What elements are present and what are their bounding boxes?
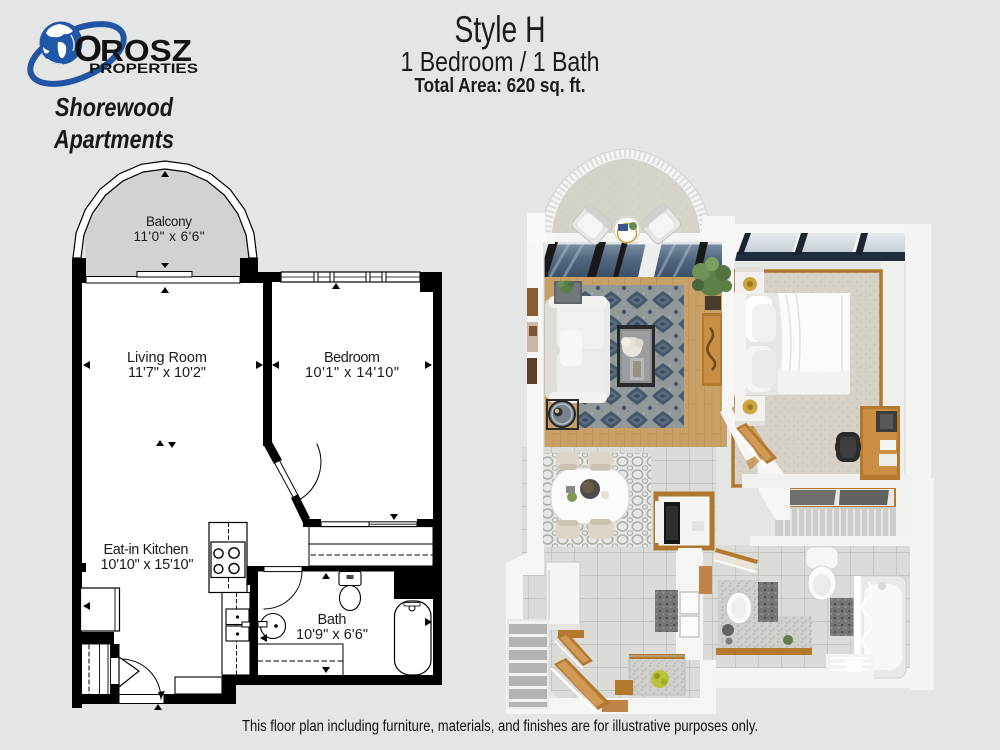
svg-text:1 Bedroom / 1 Bath: 1 Bedroom / 1 Bath bbox=[401, 46, 600, 77]
svg-text:Eat-in Kitchen: Eat-in Kitchen bbox=[104, 542, 189, 558]
svg-text:10'9" x 6'6": 10'9" x 6'6" bbox=[296, 627, 368, 643]
svg-text:PROPERTIES: PROPERTIES bbox=[89, 61, 198, 76]
svg-text:Total Area: 620 sq. ft.: Total Area: 620 sq. ft. bbox=[415, 75, 586, 97]
svg-text:Bath: Bath bbox=[318, 612, 347, 628]
svg-text:11'0" x 6'6": 11'0" x 6'6" bbox=[134, 229, 205, 244]
svg-text:Balcony: Balcony bbox=[146, 214, 192, 229]
svg-text:10'10" x 15'10": 10'10" x 15'10" bbox=[101, 557, 194, 573]
svg-text:Bedroom: Bedroom bbox=[324, 350, 380, 366]
svg-text:Shorewood: Shorewood bbox=[55, 92, 174, 122]
svg-text:10'1" x 14'10": 10'1" x 14'10" bbox=[305, 365, 399, 381]
svg-text:Apartments: Apartments bbox=[53, 124, 174, 154]
svg-text:Living Room: Living Room bbox=[127, 350, 207, 366]
svg-text:Style H: Style H bbox=[455, 9, 546, 50]
svg-text:11'7" x 10'2": 11'7" x 10'2" bbox=[128, 365, 206, 381]
svg-text:This floor plan including furn: This floor plan including furniture, mat… bbox=[242, 718, 758, 735]
